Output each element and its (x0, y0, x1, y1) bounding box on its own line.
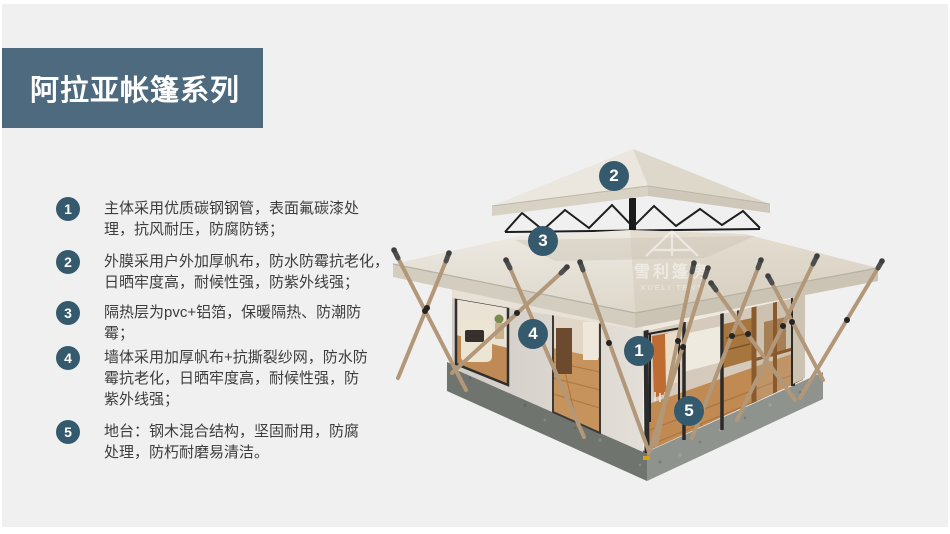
hanging-cloth (583, 322, 598, 360)
page-title: 阿拉亚帐篷系列 (2, 67, 240, 109)
feature-1-text: 主体采用优质碳钢钢管，表面氟碳漆处 理，抗风耐压，防腐防锈； (104, 198, 404, 240)
feature-2-badge: 2 (56, 250, 80, 274)
feature-3-line-1: 隔热层为pvc+铝箔，保暖隔热、防潮防 (104, 302, 404, 323)
armchair-cushion (465, 330, 484, 342)
title-banner: 阿拉亚帐篷系列 (2, 48, 263, 128)
callout-1: 1 (624, 336, 654, 366)
callout-3: 3 (528, 226, 558, 256)
slide-page: { "page": { "background": "#f0f0f0", "ac… (0, 0, 950, 534)
tent-illustration: 雪利篷房 XUELI TENT (370, 130, 950, 534)
feature-1-line-1: 主体采用优质碳钢钢管，表面氟碳漆处 (104, 198, 404, 219)
feature-4-badge: 4 (56, 346, 80, 370)
feature-4-line-2: 霉抗老化，日晒牢度高，耐候性强，防 (104, 368, 404, 389)
plant (495, 315, 504, 324)
feature-4-line-1: 墙体采用加厚帆布+抗撕裂纱网，防水防 (104, 347, 404, 368)
callout-2: 2 (599, 161, 629, 191)
cabinet (556, 328, 572, 374)
feature-2-line-1: 外膜采用户外加厚帆布，防水防霉抗老化， (104, 251, 404, 272)
feature-4-text: 墙体采用加厚帆布+抗撕裂纱网，防水防 霉抗老化，日晒牢度高，耐候性强，防 紫外线… (104, 347, 404, 410)
watermark-en: XUELI TENT (640, 283, 703, 292)
feature-4-line-3: 紫外线强； (104, 389, 404, 410)
feature-5-text: 地台：钢木混合结构，坚固耐用，防腐 处理，防朽耐磨易清洁。 (104, 421, 404, 463)
feature-3-badge: 3 (56, 301, 80, 325)
feature-1-line-2: 理，抗风耐压，防腐防锈； (104, 219, 404, 240)
callout-5: 5 (674, 396, 704, 426)
feature-3-text: 隔热层为pvc+铝箔，保暖隔热、防潮防 霉； (104, 302, 404, 344)
corner-anchor-marker (643, 456, 650, 460)
watermark-cn: 雪利篷房 (634, 262, 710, 281)
feature-5-badge: 5 (56, 420, 80, 444)
callout-4: 4 (518, 319, 548, 349)
feature-5-line-2: 处理，防朽耐磨易清洁。 (104, 442, 404, 463)
feature-5-line-1: 地台：钢木混合结构，坚固耐用，防腐 (104, 421, 404, 442)
feature-1-badge: 1 (56, 197, 80, 221)
feature-2-text: 外膜采用户外加厚帆布，防水防霉抗老化， 日晒牢度高，耐候性强，防紫外线强； (104, 251, 404, 293)
feature-2-line-2: 日晒牢度高，耐候性强，防紫外线强； (104, 272, 404, 293)
feature-3-line-2: 霉； (104, 323, 404, 344)
